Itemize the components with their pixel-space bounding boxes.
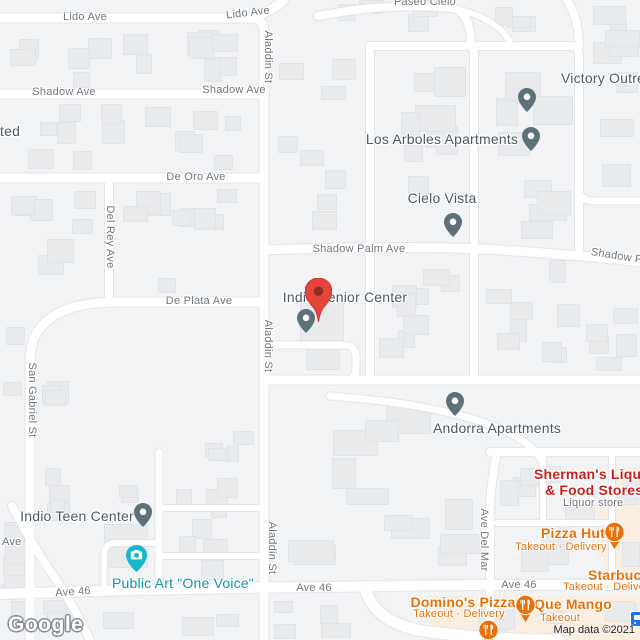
google-logo[interactable]: Google [8, 613, 83, 637]
map-attribution: Map data ©2021 [554, 624, 636, 636]
map-canvas[interactable]: Lido AveLido AveShadow AveShadow AveAlad… [0, 0, 640, 640]
roads-layer [0, 0, 640, 640]
